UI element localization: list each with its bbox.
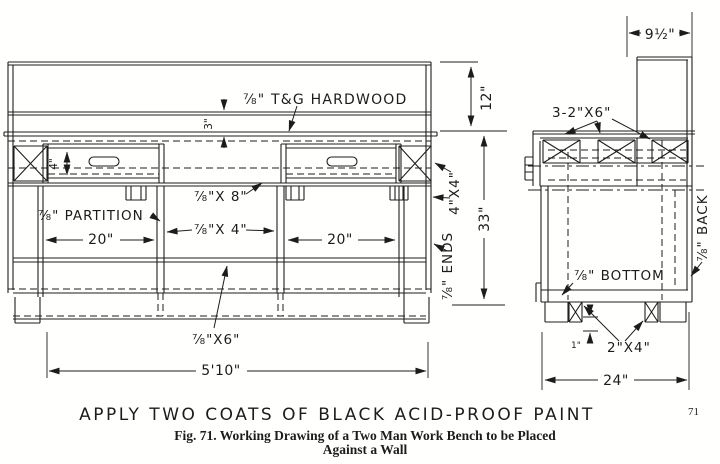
top-support-sections-2x6 xyxy=(543,140,688,163)
label-rail-4: ⅞"X 4" xyxy=(194,222,248,238)
leader-2x4-a xyxy=(584,306,619,341)
page-number: 71 xyxy=(688,406,699,418)
drawer-handle-left xyxy=(89,157,119,166)
label-bay-width-right: 20" xyxy=(327,232,353,248)
label-back-board-width: 9½" xyxy=(645,27,675,43)
label-drawer-height: 4" xyxy=(48,158,60,170)
leader-apron-8 xyxy=(246,183,262,194)
leader-2x6-a xyxy=(565,121,597,134)
label-top-supports-2x6: 3-2"X6" xyxy=(552,105,611,121)
label-leg-4x4: 4"X4" xyxy=(447,171,463,215)
label-cleat-offset: 1" xyxy=(571,341,581,351)
label-back: ⅞" BACK xyxy=(695,194,711,261)
leader-leg-4x4-a xyxy=(435,163,451,172)
figure-caption-line1: Fig. 71. Working Drawing of a Two Man Wo… xyxy=(174,428,556,443)
leader-rail-4-right xyxy=(246,230,274,231)
label-partition: ⅞" PARTITION xyxy=(38,208,144,224)
label-height-12: 12" xyxy=(479,85,495,111)
label-tg-hardwood: ⅞" T&G HARDWOOD xyxy=(243,92,408,108)
label-apron-8: ⅞"X 8" xyxy=(194,189,248,205)
foot-cleat-sections-2x4 xyxy=(569,302,658,322)
label-overall-width: 5'10" xyxy=(201,363,241,379)
annotation-labels: ⅞" T&G HARDWOOD 3" 4" ⅞" PARTITION ⅞"X 8… xyxy=(38,27,711,389)
leader-2x6-c xyxy=(612,119,650,139)
workbench-working-drawing: ⅞" T&G HARDWOOD 3" 4" ⅞" PARTITION ⅞"X 8… xyxy=(0,0,720,464)
leader-2x4-b xyxy=(625,321,643,341)
label-bay-width-left: 20" xyxy=(88,232,114,248)
leader-back xyxy=(691,262,702,276)
label-bottom-rail-6: ⅞"X6" xyxy=(192,332,240,348)
label-ends: ⅞" ENDS xyxy=(440,232,456,300)
label-foot-cleat-2x4: 2"X4" xyxy=(607,340,651,356)
leader-tg-hardwood xyxy=(289,106,297,131)
label-height-33: 33" xyxy=(477,206,493,232)
paint-instruction: APPLY TWO COATS OF BLACK ACID-PROOF PAIN… xyxy=(79,405,595,425)
label-bottom: ⅞" BOTTOM xyxy=(574,268,665,284)
figure-caption-line2: Against a Wall xyxy=(323,442,408,457)
label-overall-depth: 24" xyxy=(603,373,629,389)
dimension-lines xyxy=(46,33,690,380)
extension-lines xyxy=(47,12,692,390)
drawers-linework xyxy=(43,144,401,183)
book-page: ⅞" T&G HARDWOOD 3" 4" ⅞" PARTITION ⅞"X 8… xyxy=(0,0,720,464)
leader-rail-4-left xyxy=(167,230,192,232)
label-top-thickness: 3" xyxy=(203,118,215,130)
leader-partition xyxy=(151,215,160,221)
drawer-handle-right xyxy=(327,157,357,166)
front-leg-end-sections xyxy=(14,146,431,181)
figure-footer: APPLY TWO COATS OF BLACK ACID-PROOF PAIN… xyxy=(79,405,699,457)
